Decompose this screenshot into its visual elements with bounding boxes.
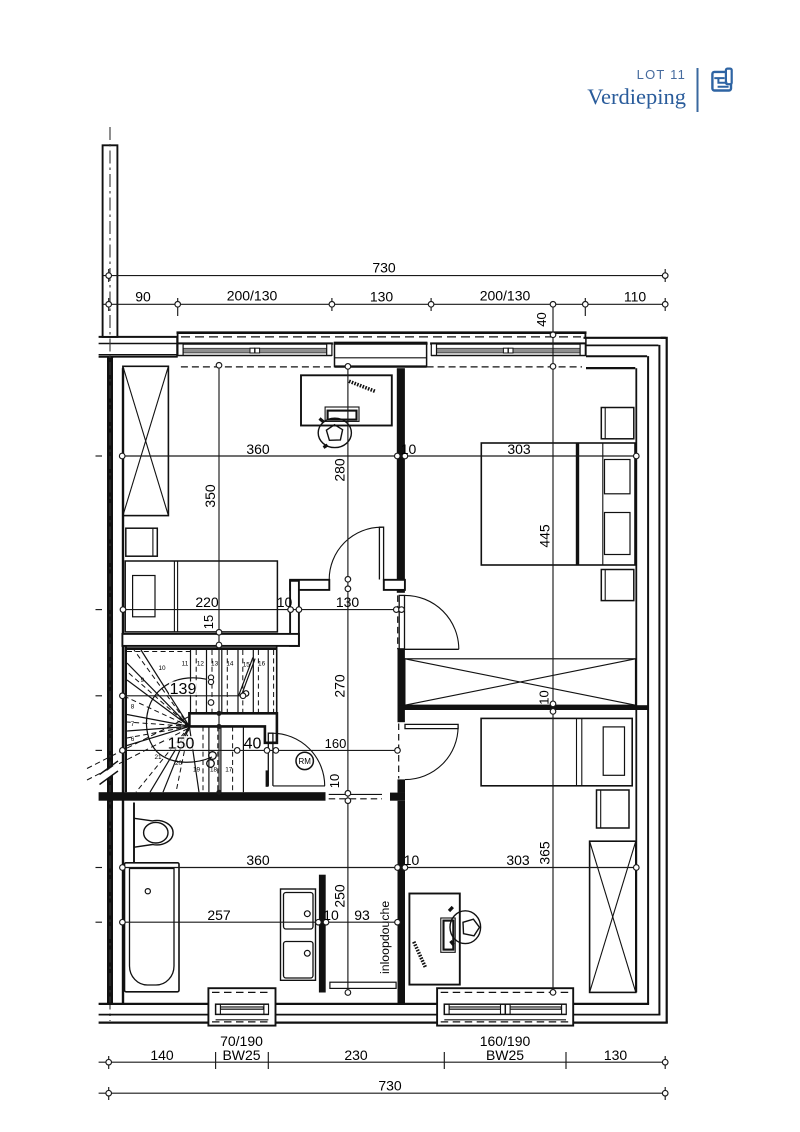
svg-text:11: 11 [182, 661, 189, 668]
svg-text:Verdieping: Verdieping [587, 84, 686, 109]
svg-text:19: 19 [193, 767, 201, 774]
svg-text:10: 10 [404, 852, 420, 868]
svg-text:10: 10 [401, 441, 417, 457]
svg-text:10: 10 [158, 665, 166, 672]
svg-text:BW25: BW25 [222, 1047, 260, 1063]
svg-text:110: 110 [624, 288, 647, 304]
svg-text:8: 8 [131, 704, 135, 711]
svg-text:445: 445 [537, 524, 553, 548]
svg-text:200/130: 200/130 [227, 288, 278, 304]
svg-text:9: 9 [141, 677, 145, 684]
svg-text:130: 130 [336, 594, 360, 610]
svg-text:10: 10 [323, 907, 339, 923]
svg-text:150: 150 [168, 736, 195, 753]
svg-text:14: 14 [226, 661, 234, 668]
svg-text:40: 40 [534, 312, 549, 326]
svg-text:220: 220 [195, 594, 219, 610]
svg-text:17: 17 [225, 767, 233, 774]
svg-text:inloopdouche: inloopdouche [378, 901, 392, 974]
svg-text:139: 139 [170, 681, 197, 698]
svg-text:93: 93 [354, 907, 370, 923]
svg-text:270: 270 [332, 674, 348, 698]
svg-text:730: 730 [378, 1078, 402, 1094]
svg-text:20: 20 [175, 760, 183, 767]
svg-text:130: 130 [604, 1047, 628, 1063]
svg-text:6: 6 [131, 736, 135, 743]
svg-text:160: 160 [325, 736, 347, 751]
svg-text:250: 250 [332, 884, 348, 908]
svg-text:21: 21 [154, 754, 162, 761]
svg-text:90: 90 [135, 288, 151, 304]
svg-text:15: 15 [243, 662, 251, 669]
svg-text:303: 303 [506, 852, 530, 868]
svg-text:13: 13 [211, 661, 219, 668]
svg-text:15: 15 [201, 615, 216, 629]
svg-text:360: 360 [246, 852, 270, 868]
svg-text:303: 303 [507, 441, 531, 457]
svg-text:130: 130 [370, 288, 394, 304]
svg-text:140: 140 [150, 1047, 174, 1063]
svg-text:LOT 11: LOT 11 [637, 67, 686, 82]
svg-text:10: 10 [327, 774, 342, 788]
svg-text:10: 10 [537, 690, 552, 704]
svg-text:10: 10 [277, 594, 293, 610]
svg-text:12: 12 [197, 661, 205, 668]
svg-text:RM: RM [298, 757, 311, 766]
svg-text:350: 350 [202, 484, 218, 508]
svg-text:257: 257 [207, 907, 231, 923]
svg-text:BW25: BW25 [486, 1047, 524, 1063]
svg-text:200/130: 200/130 [480, 288, 531, 304]
svg-text:365: 365 [537, 841, 553, 865]
svg-text:40: 40 [244, 736, 262, 753]
svg-text:18: 18 [210, 767, 218, 774]
svg-text:7: 7 [131, 721, 135, 728]
svg-text:16: 16 [258, 661, 266, 668]
svg-text:360: 360 [246, 441, 270, 457]
svg-text:230: 230 [344, 1047, 368, 1063]
svg-text:280: 280 [332, 458, 348, 482]
svg-text:730: 730 [372, 260, 396, 276]
